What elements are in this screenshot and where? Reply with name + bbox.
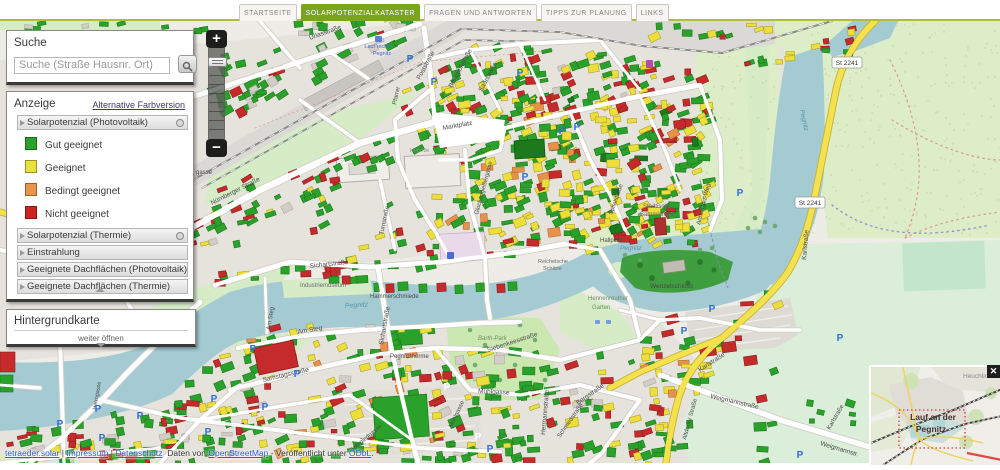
svg-text:St 2241: St 2241 <box>799 200 822 207</box>
svg-text:P: P <box>681 326 688 337</box>
svg-text:Pegnitz: Pegnitz <box>373 51 392 57</box>
svg-text:Garten: Garten <box>592 305 610 311</box>
svg-text:P: P <box>294 369 301 380</box>
svg-text:P: P <box>57 419 64 430</box>
svg-text:P: P <box>95 404 102 415</box>
svg-text:P: P <box>250 344 257 355</box>
svg-text:P: P <box>99 433 106 444</box>
svg-text:gasse: gasse <box>196 170 213 176</box>
svg-text:P: P <box>262 402 269 413</box>
svg-text:Pegnitz: Pegnitz <box>620 245 642 252</box>
svg-text:P: P <box>431 77 438 88</box>
svg-text:P: P <box>487 444 494 455</box>
svg-text:Schäne: Schäne <box>543 266 562 272</box>
svg-text:Lauf rechts: Lauf rechts <box>364 44 391 50</box>
svg-text:Sammlungen: Sammlungen <box>640 212 675 218</box>
svg-text:Städtische: Städtische <box>643 204 672 210</box>
svg-text:Barth-Park: Barth-Park <box>478 336 508 342</box>
svg-text:P: P <box>517 68 524 79</box>
svg-text:P: P <box>522 172 529 183</box>
svg-text:P: P <box>475 432 482 443</box>
svg-text:P: P <box>709 304 716 315</box>
svg-text:P: P <box>574 122 581 133</box>
svg-text:P: P <box>205 427 212 438</box>
svg-text:Industriemuseum: Industriemuseum <box>300 283 346 289</box>
svg-text:Hennenreuther: Hennenreuther <box>588 296 628 302</box>
svg-text:P: P <box>407 54 414 65</box>
svg-text:HypoVe: HypoVe <box>410 148 429 154</box>
svg-text:St 2241: St 2241 <box>836 60 859 67</box>
svg-text:P: P <box>559 126 566 137</box>
svg-text:Hammerschmiede: Hammerschmiede <box>370 294 419 300</box>
svg-text:Hallplatz: Hallplatz <box>600 238 623 244</box>
svg-text:P: P <box>444 382 451 393</box>
svg-text:P: P <box>137 411 144 422</box>
svg-text:Reichelsche: Reichelsche <box>538 259 568 265</box>
svg-text:Pegnitztherme: Pegnitztherme <box>390 354 429 360</box>
svg-text:Heuchlir: Heuchlir <box>963 373 988 380</box>
svg-text:P: P <box>737 188 744 199</box>
svg-text:P: P <box>837 333 844 344</box>
svg-text:P: P <box>211 394 218 405</box>
svg-text:Pegnitz: Pegnitz <box>916 424 946 434</box>
svg-text:Wenzelschloss: Wenzelschloss <box>650 283 694 290</box>
svg-text:P: P <box>797 450 804 461</box>
svg-text:Lauf an der: Lauf an der <box>910 412 957 422</box>
